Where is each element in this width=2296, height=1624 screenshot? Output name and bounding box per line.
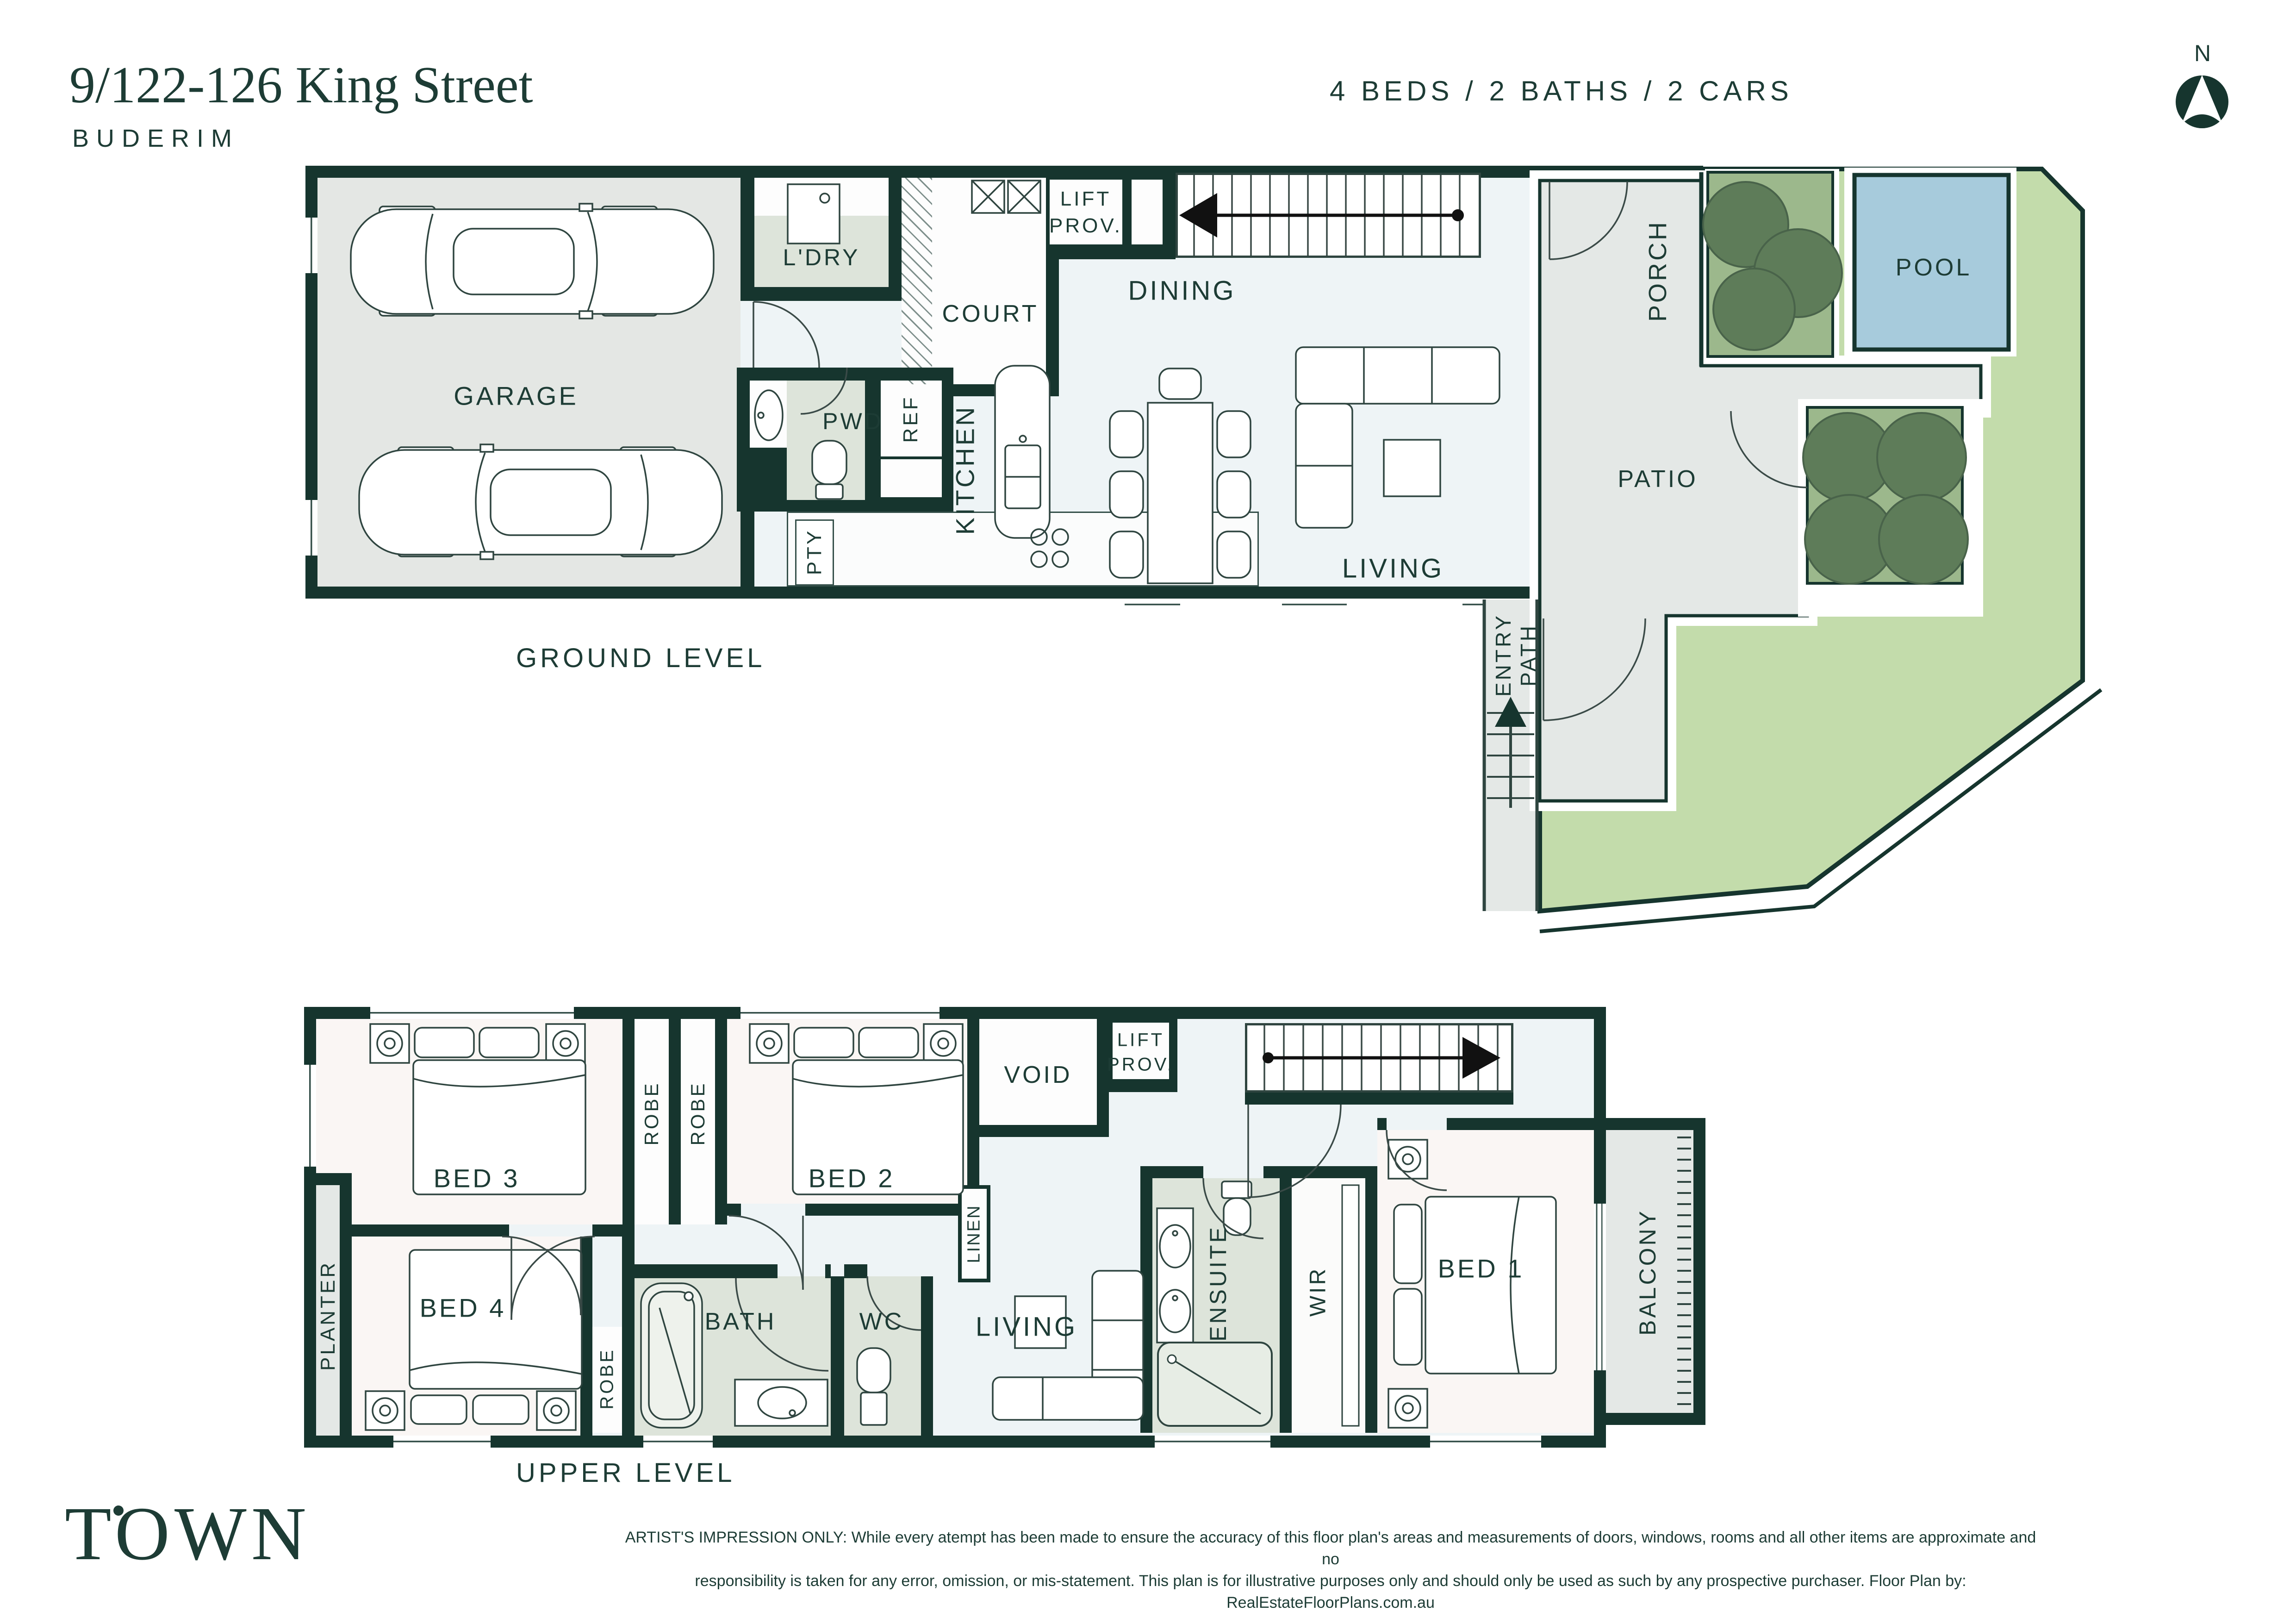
label-ensuite: ENSUITE [1205, 1225, 1232, 1342]
tree [1713, 269, 1795, 350]
disclaimer-line-1: ARTIST'S IMPRESSION ONLY: While every at… [616, 1527, 2046, 1570]
wall-bed2-bottom-a [727, 1204, 741, 1216]
label-living-ground: LIVING [1342, 553, 1444, 584]
stairs-ground [1176, 173, 1481, 258]
upper-living-window [1155, 1436, 1270, 1448]
label-pwd: PWD [822, 408, 884, 435]
label-wir: WIR [1306, 1267, 1331, 1317]
label-ref: REF [899, 395, 922, 443]
garden-bed-2 [1798, 399, 1983, 617]
wall-ensuite-top-a [1152, 1166, 1203, 1178]
label-robe-a: ROBE [641, 1081, 663, 1145]
wall-bath-wc [831, 1276, 844, 1436]
wall-robe-c-right [622, 1237, 635, 1436]
lift-cupboard [1132, 180, 1163, 244]
label-pty: PTY [803, 529, 826, 575]
wall-bed4-right [580, 1237, 592, 1436]
wall-void-bottom [979, 1125, 1109, 1137]
property-boundary [1540, 690, 2101, 931]
bed1-window [1430, 1436, 1541, 1448]
room-bath [635, 1276, 831, 1436]
label-balcony: BALCONY [1634, 1209, 1661, 1336]
tree [1703, 182, 1788, 267]
wall-robe-right [715, 1019, 727, 1224]
wall-bath-top-a [635, 1264, 778, 1278]
label-void: VOID [1004, 1061, 1072, 1089]
front-door-arc [1549, 181, 1627, 259]
wall-bed1-top-a [1377, 1118, 1387, 1130]
living-sliding-door [1534, 296, 1546, 574]
label-lift-upper: LIFT [1117, 1030, 1164, 1051]
living-window-1 [1282, 599, 1347, 611]
label-lift-ground: LIFT [1060, 187, 1111, 211]
tree [1754, 229, 1842, 317]
wall-bath-top-b [825, 1264, 831, 1278]
label-path: PATH [1516, 624, 1541, 687]
label-prov-ground: PROV. [1049, 214, 1122, 237]
label-patio: PATIO [1618, 465, 1698, 493]
wall-planter-right [340, 1185, 352, 1436]
wall-ensuite-left [1140, 1166, 1152, 1433]
room-wc [844, 1276, 921, 1436]
wall-ensuite-top-b [1263, 1166, 1280, 1178]
room-ldry-appliance [754, 178, 889, 216]
room-bed3 [316, 1019, 622, 1224]
tree [1805, 495, 1894, 584]
kitchen-bench [787, 512, 1259, 587]
wall-stairs-upper-bottom [1245, 1093, 1513, 1105]
label-bed4: BED 4 [420, 1293, 506, 1323]
balcony-decking [1677, 1137, 1691, 1407]
label-entry: ENTRY [1491, 613, 1516, 697]
label-linen: LINEN [964, 1205, 984, 1263]
north-label: N [2175, 40, 2230, 67]
room-pwd [787, 381, 865, 500]
wall-ensuite-wir [1280, 1166, 1292, 1433]
disclaimer: ARTIST'S IMPRESSION ONLY: While every at… [616, 1527, 2046, 1614]
bed4-window [393, 1436, 491, 1448]
bed1-balcony-slider [1594, 1204, 1606, 1370]
label-robe-b: ROBE [687, 1081, 709, 1145]
garage-window-1 [305, 218, 317, 273]
stairs-upper [1245, 1023, 1513, 1093]
label-bed1: BED 1 [1438, 1254, 1524, 1284]
bed3-window [370, 1007, 574, 1019]
label-pool: POOL [1896, 254, 1972, 281]
wall-ldry-right [889, 178, 902, 301]
wall-bed2-bottom-b [805, 1204, 979, 1216]
garage-window-2 [305, 500, 317, 556]
dining-window-1 [1125, 599, 1180, 611]
pwd-basin-niche [750, 381, 787, 448]
suburb-label: BUDERIM [72, 124, 239, 153]
label-dining: DINING [1128, 275, 1236, 306]
label-bed3: BED 3 [434, 1163, 520, 1193]
label-wc: WC [859, 1308, 904, 1336]
label-kitchen: KITCHEN [950, 405, 980, 535]
wall-void-right [1097, 1019, 1109, 1137]
court-louvre-screen [902, 178, 932, 384]
lawn [1540, 169, 2101, 931]
label-court: COURT [942, 300, 1039, 328]
tree [1879, 495, 1968, 584]
wall-bed1-top-b [1447, 1118, 1594, 1130]
garden-bed-1 [1703, 169, 1842, 363]
floor-plan-page: 9/122-126 King Street BUDERIM 4 BEDS / 2… [0, 0, 2296, 1624]
bed2-window [740, 1007, 940, 1019]
bed3-side-window [304, 1065, 316, 1167]
wall-robe-divider [669, 1019, 681, 1224]
label-planter: PLANTER [317, 1261, 340, 1371]
town-logo: TOWN [65, 1490, 311, 1578]
label-living-upper: LIVING [976, 1312, 1077, 1343]
wall-wc-right [921, 1276, 933, 1436]
north-arrow-icon [2174, 74, 2230, 130]
disclaimer-line-2: responsibility is taken for any error, o… [616, 1570, 2046, 1614]
ground-level-label: GROUND LEVEL [516, 643, 765, 674]
wall-bed3-right [622, 1019, 635, 1224]
wall-wir-top [1292, 1166, 1365, 1178]
entry-door-arc [1543, 618, 1645, 720]
wall-bed3-bottom-b [592, 1224, 635, 1237]
upper-level-label: UPPER LEVEL [516, 1457, 735, 1488]
tree [1877, 413, 1966, 502]
wall-ldry-bottom [740, 287, 902, 301]
wall-wc-top [844, 1264, 867, 1278]
property-summary: 4 BEDS / 2 BATHS / 2 CARS [1330, 75, 1793, 107]
label-porch: PORCH [1643, 220, 1672, 322]
bath-window [643, 1436, 713, 1448]
label-garage: GARAGE [454, 381, 579, 411]
logo-dot [113, 1505, 124, 1516]
label-bed2: BED 2 [809, 1163, 895, 1193]
porch-top-wall [1546, 166, 1703, 181]
wall-garage-1 [740, 178, 754, 300]
room-bed4 [352, 1237, 580, 1436]
wall-wir-right [1365, 1166, 1377, 1433]
label-prov-upper: PROV. [1107, 1055, 1175, 1075]
pantry-cupboard [881, 459, 942, 497]
label-bath: BATH [705, 1308, 777, 1336]
tree [1803, 413, 1892, 502]
page-title: 9/122-126 King Street [69, 56, 533, 115]
label-robe-c: ROBE [597, 1348, 618, 1409]
label-ldry: L'DRY [783, 244, 860, 271]
wall-planter-top [316, 1173, 352, 1185]
